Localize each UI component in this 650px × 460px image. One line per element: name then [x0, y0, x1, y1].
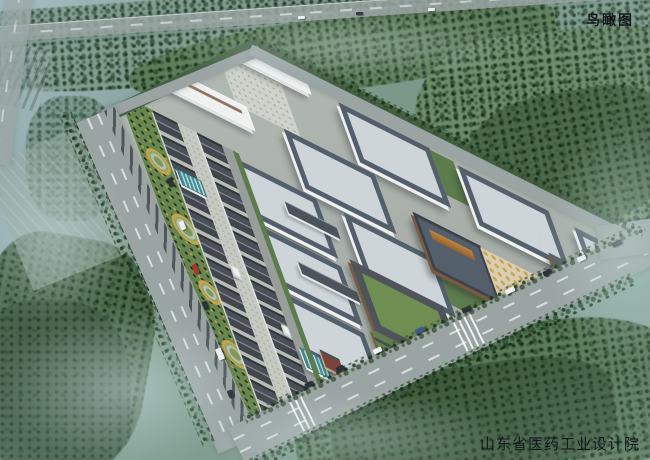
vehicle: [356, 12, 363, 15]
view-title: 鸟瞰图: [586, 10, 634, 30]
forest-bottom-left-dark: [0, 300, 130, 460]
vehicle: [298, 16, 305, 19]
design-institute-credit: 山东省医药工业设计院: [480, 433, 640, 454]
vehicle: [428, 8, 435, 11]
aerial-rendering: 鸟瞰图 山东省医药工业设计院: [0, 0, 650, 460]
